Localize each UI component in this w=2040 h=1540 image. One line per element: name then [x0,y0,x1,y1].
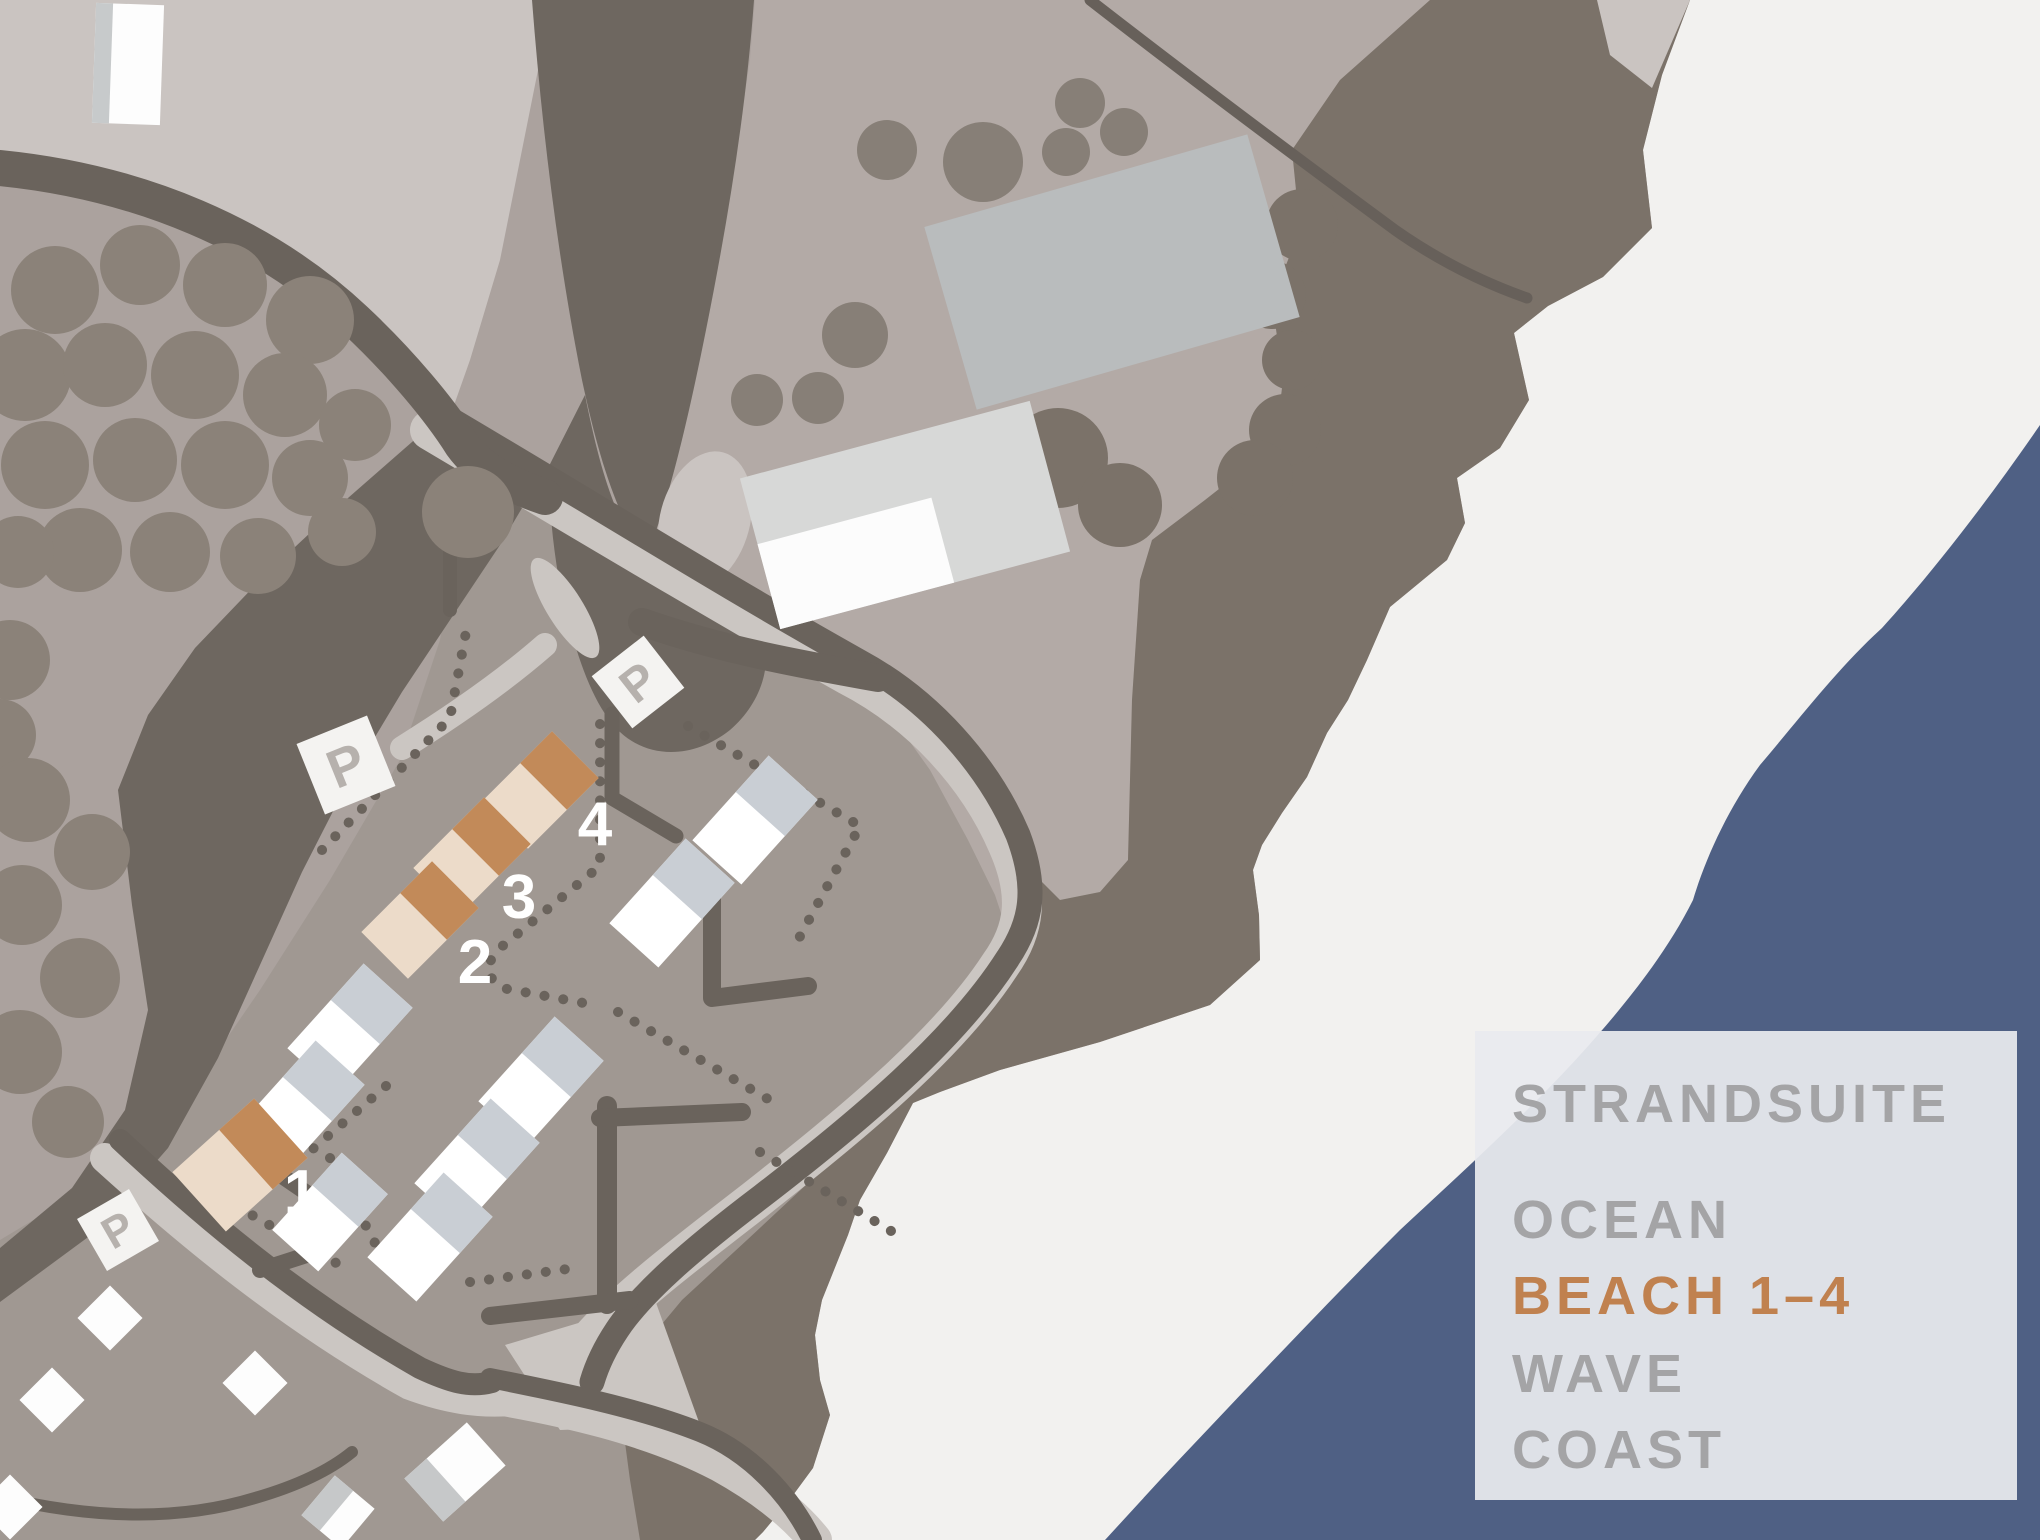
tree-icon [181,421,269,509]
tree-icon [243,353,327,437]
resort-site-map: P P P 4 3 2 1 STRANDSUITE OCEAN BEACH 1–… [0,0,2040,1540]
tree-icon [11,246,99,334]
tree-icon [1042,128,1090,176]
tree-icon [32,1086,104,1158]
tree-icon [151,331,239,419]
access-road [600,1112,742,1118]
unit-number-4: 4 [578,790,614,859]
tree-icon [422,466,514,558]
tree-icon [1217,440,1293,516]
tower-building [92,3,164,125]
tree-icon [220,518,296,594]
legend-line-coast: COAST [1512,1420,1726,1480]
tree-icon [266,276,354,364]
tree-icon [100,225,180,305]
tree-icon [63,323,147,407]
tree-icon [1100,108,1148,156]
tree-icon [308,498,376,566]
legend-line-ocean: OCEAN [1512,1190,1732,1250]
tree-icon [1262,330,1322,390]
unit-number-1: 1 [284,1158,320,1227]
legend: STRANDSUITE OCEAN BEACH 1–4 WAVE COAST [1475,1031,2017,1500]
unit-number-2: 2 [458,928,494,997]
legend-line-wave: WAVE [1512,1344,1687,1404]
tree-icon [40,938,120,1018]
map-canvas: P P P 4 3 2 1 STRANDSUITE OCEAN BEACH 1–… [0,0,2040,1540]
tree-icon [822,302,888,368]
tree-icon [54,814,130,890]
tree-icon [1,421,89,509]
tree-icon [93,418,177,502]
tree-icon [857,120,917,180]
tree-icon [130,512,210,592]
tree-icon [731,374,783,426]
unit-number-3: 3 [502,863,538,932]
tree-icon [943,122,1023,202]
legend-line-title: STRANDSUITE [1512,1074,1951,1134]
tree-icon [1078,463,1162,547]
tree-icon [792,372,844,424]
tree-icon [1055,78,1105,128]
tree-icon [183,243,267,327]
legend-line-beach: BEACH 1–4 [1512,1266,1854,1326]
